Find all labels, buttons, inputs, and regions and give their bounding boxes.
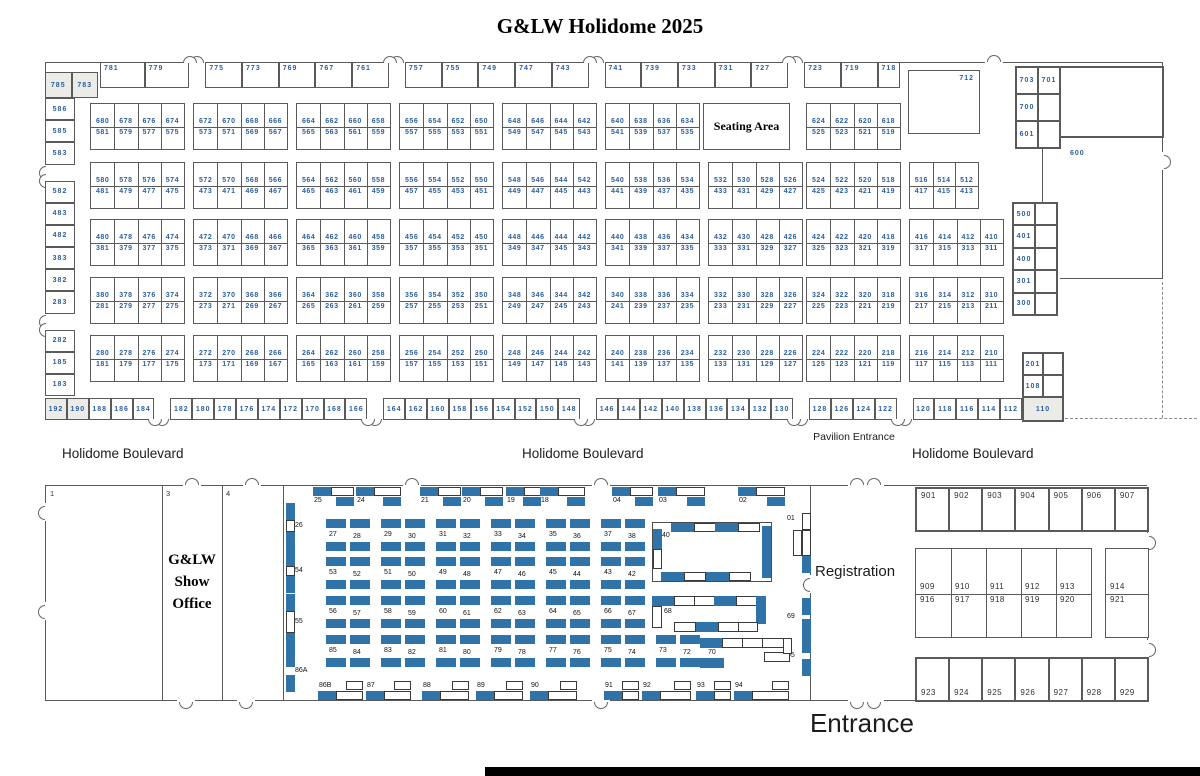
door-arc: [185, 478, 199, 485]
booth-number: 44: [573, 571, 581, 578]
wall: [283, 485, 284, 700]
booth-number: 453: [447, 188, 470, 195]
booth-number: 375: [161, 245, 184, 252]
table: [452, 681, 469, 690]
table: [286, 675, 295, 692]
booth-number: 119: [877, 361, 900, 368]
booth-number: 108: [1026, 383, 1041, 390]
booth-block: 540538536534441439437435: [605, 162, 700, 209]
door-arc: [867, 478, 881, 485]
table: [331, 487, 354, 496]
booth-cluster: 5150: [380, 557, 428, 587]
booth-number: 63: [518, 610, 526, 617]
table: [622, 681, 639, 690]
booth-number: 559: [367, 129, 390, 136]
booth-number: 66: [604, 608, 612, 615]
block-divider: [606, 301, 699, 302]
booth-cell: 383: [45, 247, 75, 269]
block-divider: [910, 301, 1003, 302]
booth-cell: 148: [558, 398, 580, 420]
table: [383, 497, 401, 506]
table: [491, 596, 511, 605]
door-gap: [793, 398, 809, 420]
table: [350, 635, 370, 644]
table: [714, 596, 738, 606]
booth-block: 232230228226133131129127: [708, 335, 803, 382]
table: [381, 619, 401, 628]
table: [436, 542, 456, 551]
booth-number: 536: [653, 177, 676, 184]
boulevard-label-center: Holidome Boulevard: [522, 446, 644, 461]
table: [722, 638, 744, 648]
booth-block: 280278276274181179177175: [90, 335, 185, 382]
table: [436, 519, 456, 528]
booth-cell: 112: [1000, 398, 1022, 420]
booth-number: 429: [756, 188, 779, 195]
booth-cell: 172: [280, 398, 302, 420]
booth-number: 76: [573, 649, 581, 656]
booth-number: 483: [53, 210, 68, 217]
booth-number: 72: [683, 649, 691, 656]
booth-number: 282: [53, 337, 68, 344]
booth-cell: 300: [1013, 293, 1035, 315]
booth-cell: 114: [978, 398, 1000, 420]
table: [485, 497, 503, 506]
booth-number: 544: [550, 177, 573, 184]
table: [687, 497, 705, 506]
booth-block: 216214212210117115113111: [909, 335, 1004, 382]
booth-number: 37: [604, 531, 612, 538]
booth-number: 583: [53, 150, 68, 157]
booth-number: 907: [1120, 492, 1135, 500]
table: [318, 691, 337, 700]
booth-number: 158: [452, 406, 467, 413]
table: [480, 487, 503, 496]
booth-number: 328: [756, 292, 779, 299]
booth-cell: 150: [536, 398, 558, 420]
booth-cell: 906: [1082, 488, 1115, 531]
booth-number: 743: [556, 65, 571, 72]
booth-cell: 116: [956, 398, 978, 420]
booth-number: 257: [400, 303, 423, 310]
table: [384, 691, 411, 700]
table: [604, 691, 623, 700]
booth-number: 459: [367, 188, 390, 195]
booth-cell: 723: [804, 62, 841, 88]
booth-number: 184: [136, 406, 151, 413]
booth-number: 727: [755, 65, 770, 72]
block-divider: [709, 243, 802, 244]
booth-number: 477: [138, 188, 161, 195]
table: [515, 596, 535, 605]
table: [460, 619, 480, 628]
booth-number: 903: [987, 492, 1002, 500]
booth-number: 151: [470, 361, 493, 368]
booth-block: 480478476474381379377375: [90, 219, 185, 266]
booth-number: 634: [676, 118, 699, 125]
booth-number: 446: [526, 234, 549, 241]
booth-number: 185: [53, 359, 68, 366]
booth-strip: 785783: [45, 72, 98, 98]
door-arc: [1164, 155, 1171, 169]
block-divider: [194, 359, 287, 360]
table: [625, 580, 645, 589]
block-divider: [807, 127, 900, 128]
door-arc: [987, 55, 1001, 62]
room-4-label: 4: [226, 489, 230, 498]
booth-cluster: 18: [540, 487, 584, 505]
cell-row: 700: [1016, 94, 1060, 121]
table: [462, 487, 481, 496]
booth-cell: [1043, 353, 1063, 375]
block-divider: [194, 301, 287, 302]
booth-number: 733: [682, 65, 697, 72]
booth-number: 458: [367, 234, 390, 241]
booth-cell: 783: [72, 72, 99, 98]
booth-number: 238: [629, 350, 652, 357]
booth-number: 666: [264, 118, 287, 125]
booth-number: 339: [629, 245, 652, 252]
booth-block: 324322320318225223221219: [806, 277, 901, 324]
booth-number: 148: [562, 406, 577, 413]
booth-number: 94: [735, 682, 743, 689]
booth-number: 186: [114, 406, 129, 413]
booth-number: 557: [400, 129, 423, 136]
table: [420, 487, 439, 496]
booth-number: 235: [676, 303, 699, 310]
booth-number: 775: [209, 65, 224, 72]
booth-number: 122: [878, 406, 893, 413]
door-gap: [45, 314, 75, 330]
booth-number: 450: [470, 234, 493, 241]
table: [350, 542, 370, 551]
booth-cluster: 02: [738, 487, 784, 505]
table: [286, 549, 295, 566]
booth-number: 182: [174, 406, 189, 413]
booth-number: 181: [91, 361, 114, 368]
booth-block: 572570568566473471469467: [193, 162, 288, 209]
table: [524, 487, 541, 496]
booth-cell: 400: [1013, 248, 1035, 270]
booth-number: 190: [70, 406, 85, 413]
table: [350, 596, 370, 605]
table: [601, 580, 621, 589]
booth-number: 556: [400, 177, 423, 184]
booth-number: 441: [606, 188, 629, 195]
booth-cluster: 69: [786, 598, 812, 634]
booth-number: 226: [779, 350, 802, 357]
booth-number: 464: [297, 234, 320, 241]
seating-area-box: Seating Area: [703, 103, 790, 150]
booth-number: 143: [573, 361, 596, 368]
booth-number: 29: [384, 531, 392, 538]
booth-cell: 767: [315, 62, 352, 88]
table: [696, 622, 720, 632]
booth-number: 363: [320, 245, 343, 252]
booth-number: 42: [628, 571, 636, 578]
booth-number: 575: [161, 129, 184, 136]
booth-cluster: 40: [652, 522, 772, 582]
booth-number: 333: [709, 245, 732, 252]
cell-row: 703701: [1016, 67, 1060, 94]
booth-number: 680: [91, 118, 114, 125]
booth-number: 319: [877, 245, 900, 252]
booth-cell: 718: [878, 62, 900, 88]
booth-cell: 739: [641, 62, 678, 88]
booth-number: 118: [938, 406, 952, 413]
door-arc: [850, 478, 864, 485]
booth-cluster: 6465: [545, 596, 593, 626]
booth-cell: 178: [214, 398, 236, 420]
booth-number: 912: [1025, 583, 1040, 591]
booth-cluster: 5859: [380, 596, 428, 626]
booth-number: 421: [854, 188, 877, 195]
booth-number: 431: [732, 188, 755, 195]
table: [656, 635, 676, 644]
booth-number: 919: [1025, 596, 1040, 604]
booth-number: 144: [622, 406, 637, 413]
table: [405, 658, 425, 667]
booth-number: 424: [807, 234, 830, 241]
door-arc: [1149, 643, 1156, 657]
booth-number: 188: [92, 406, 107, 413]
block-divider: [297, 301, 390, 302]
booth-cell: 154: [493, 398, 515, 420]
booth-number: 218: [877, 350, 900, 357]
booth-cell: 140: [662, 398, 684, 420]
booth-number: 172: [283, 406, 298, 413]
booth-number: 301: [1017, 278, 1032, 285]
booth-number: 565: [297, 129, 320, 136]
booth-number: 454: [423, 234, 446, 241]
table: [460, 596, 480, 605]
booth-number: 68: [664, 608, 672, 615]
booth-number: 26: [295, 522, 303, 529]
table: [438, 487, 461, 496]
booth-number: 372: [194, 292, 217, 299]
booth-cell: [1035, 203, 1057, 225]
booth-number: 601: [1020, 131, 1035, 138]
block-divider: [807, 301, 900, 302]
booth-number: 712: [959, 75, 974, 82]
booth-number: 646: [526, 118, 549, 125]
booth-cell: 118: [934, 398, 956, 420]
booth-number: 525: [807, 129, 830, 136]
booth-cell: [1035, 248, 1057, 270]
table: [601, 519, 621, 528]
table: [515, 557, 535, 566]
table: [714, 681, 731, 690]
booth-cell: 757: [405, 62, 442, 88]
booth-number: 442: [573, 234, 596, 241]
booth-number: 210: [980, 350, 1003, 357]
booth-number: 455: [423, 188, 446, 195]
booth-number: 471: [217, 188, 240, 195]
booth-cell: 108: [1023, 375, 1043, 397]
booth-number: 131: [732, 361, 755, 368]
booth-cell-grid: 110: [1022, 396, 1064, 422]
booth-number: 213: [957, 303, 980, 310]
door-arc: [594, 702, 608, 709]
door-gap: [367, 398, 383, 420]
booth-number: 214: [933, 350, 956, 357]
booth-number: 30: [408, 533, 416, 540]
table: [326, 580, 346, 589]
booth-number: 911: [990, 583, 1004, 591]
block-divider: [194, 243, 287, 244]
booth-number: 563: [320, 129, 343, 136]
booth-cell: 719: [841, 62, 878, 88]
table: [546, 519, 566, 528]
table: [570, 542, 590, 551]
booth-cluster: 04: [612, 487, 652, 505]
table: [460, 519, 480, 528]
booth-number: 128: [813, 406, 828, 413]
booth-number: 917: [955, 596, 970, 604]
booth-number: 434: [676, 234, 699, 241]
booth-cluster: 68: [652, 592, 770, 634]
table: [752, 691, 789, 700]
booth-number: 920: [1060, 596, 1075, 604]
booth-number: 215: [933, 303, 956, 310]
door-gap: [788, 62, 804, 88]
booth-number: 534: [676, 177, 699, 184]
door-arc: [245, 478, 259, 485]
booth-number: 27: [329, 531, 337, 538]
booth-number: 648: [503, 118, 526, 125]
booth-number: 550: [470, 177, 493, 184]
booth-number: 428: [756, 234, 779, 241]
booth-number: 124: [856, 406, 871, 413]
booth-cluster: 4544: [545, 557, 593, 587]
booth-number: 327: [779, 245, 802, 252]
booth-number: 165: [297, 361, 320, 368]
booth-number: 448: [503, 234, 526, 241]
booth-number: 545: [550, 129, 573, 136]
booth-number: 92: [643, 682, 651, 689]
booth-cluster: 24: [356, 487, 400, 505]
table: [656, 658, 676, 667]
booth-number: 644: [550, 118, 573, 125]
block-divider: [297, 359, 390, 360]
booth-number: 480: [91, 234, 114, 241]
booth-number: 180: [196, 406, 211, 413]
booth-block: 516514512417415413: [909, 162, 979, 209]
booth-number: 773: [246, 65, 261, 72]
booth-number: 57: [353, 610, 361, 617]
booth-number: 62: [494, 608, 502, 615]
booth-number: 445: [550, 188, 573, 195]
booth-cell: 747: [515, 62, 552, 88]
booth-cell: 905: [1049, 488, 1082, 531]
booth-number: 166: [349, 406, 364, 413]
booth-number: 460: [344, 234, 367, 241]
table: [540, 487, 559, 496]
booth-number: 49: [439, 569, 447, 576]
booth-number: 228: [756, 350, 779, 357]
booth-number: 359: [367, 245, 390, 252]
booth-number: 56: [329, 608, 337, 615]
booth-number: 660: [344, 118, 367, 125]
booth-cluster: 6667: [600, 596, 648, 626]
booth-number: 24: [357, 497, 365, 504]
booth-number: 426: [779, 234, 802, 241]
booth-number: 347: [526, 245, 549, 252]
booth-number: 268: [241, 350, 264, 357]
booth-number: 541: [606, 129, 629, 136]
booth-number: 255: [423, 303, 446, 310]
booth-number: 668: [241, 118, 264, 125]
booth-number: 422: [830, 234, 853, 241]
door-arc: [179, 702, 193, 709]
block-divider: [91, 359, 184, 360]
booth-block: 524522520518425423421419: [806, 162, 901, 209]
booth-number: 718: [882, 65, 897, 72]
booth-number: 462: [320, 234, 343, 241]
table: [601, 596, 621, 605]
booth-cluster: 8382: [380, 635, 428, 665]
table: [625, 619, 645, 628]
block-divider: [606, 243, 699, 244]
booth-block: 914921: [1105, 548, 1149, 638]
booth-number: 86A: [295, 667, 307, 674]
block-divider: [503, 127, 596, 128]
booth-number: 113: [957, 361, 980, 368]
table: [729, 572, 751, 581]
table: [546, 619, 566, 628]
table: [570, 596, 590, 605]
booth-number: 783: [77, 82, 92, 89]
booth-block: 472470468466373371369367: [193, 219, 288, 266]
booth-number: 456: [400, 234, 423, 241]
booth-number: 674: [161, 118, 184, 125]
block-divider: [91, 243, 184, 244]
booth-number: 245: [550, 303, 573, 310]
booth-number: 312: [957, 292, 980, 299]
booth-number: 520: [854, 177, 877, 184]
block-divider: [91, 301, 184, 302]
booth-number: 137: [653, 361, 676, 368]
wall-dashed: [1162, 282, 1163, 418]
booth-cell: 500: [1013, 203, 1035, 225]
booth-cell: 743: [552, 62, 589, 88]
floor-plan-canvas: G&LW Holidome 2025 Seating Area 712 600 …: [0, 0, 1200, 776]
table: [676, 487, 705, 496]
booth-number: 564: [297, 177, 320, 184]
door-arc: [38, 605, 45, 619]
table: [546, 658, 566, 667]
booth-cell: 703: [1016, 67, 1038, 94]
booth-number: 374: [161, 292, 184, 299]
booth-number: 02: [739, 497, 747, 504]
booth-number: 141: [606, 361, 629, 368]
booth-number: 315: [933, 245, 956, 252]
block-divider: [194, 127, 287, 128]
table: [772, 681, 789, 690]
booth-cell: 192: [45, 398, 67, 420]
booth-number: 129: [756, 361, 779, 368]
booth-block: 664662660658565563561559: [296, 103, 391, 150]
booth-cell: 775: [205, 62, 242, 88]
table: [738, 487, 757, 496]
booth-number: 366: [264, 292, 287, 299]
booth-cell: 132: [749, 398, 771, 420]
booth-number: 232: [709, 350, 732, 357]
booth-number: 88: [423, 682, 431, 689]
booth-number: 560: [344, 177, 367, 184]
booth-cell-grid: 500401400301300: [1012, 202, 1058, 316]
block-divider: [91, 186, 184, 187]
